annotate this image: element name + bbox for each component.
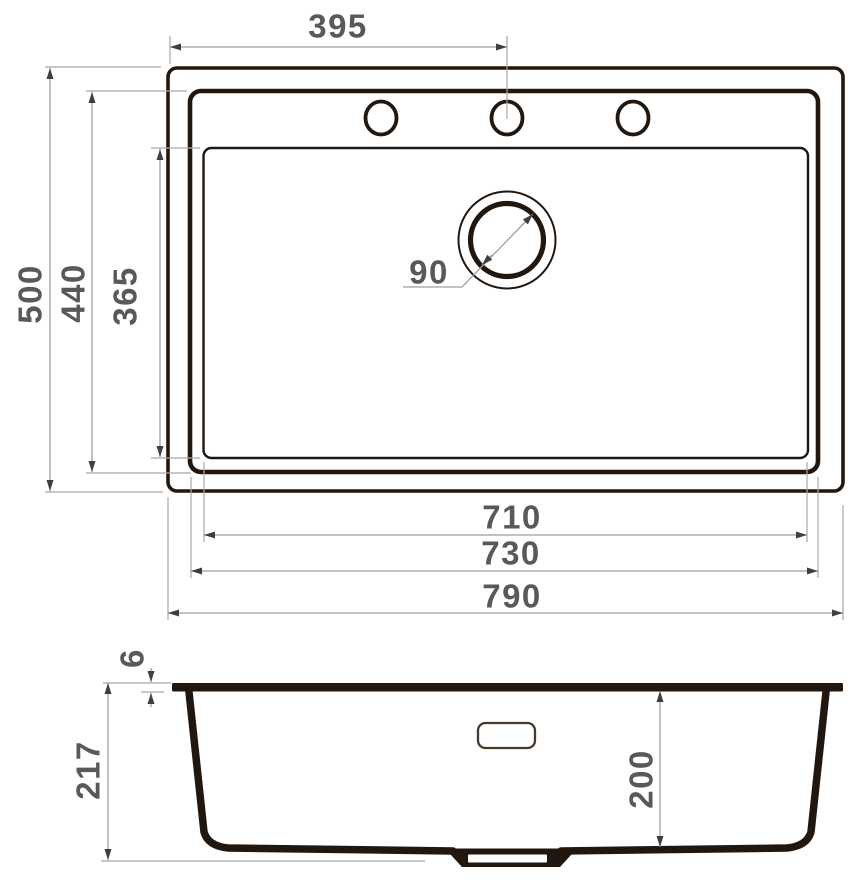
right-wall — [561, 692, 826, 851]
dim-bowl-inner-depth: 365 — [107, 148, 201, 458]
section-view: 6 217 200 — [70, 648, 844, 867]
dim-label-90: 90 — [409, 254, 449, 291]
dim-label-710: 710 — [482, 499, 542, 536]
drawing-canvas: 395 500 440 365 90 — [0, 0, 860, 880]
rim-bar — [172, 683, 843, 692]
dim-overall-height: 217 — [70, 683, 426, 861]
dim-label-217: 217 — [70, 740, 107, 800]
overflow-opening — [478, 723, 535, 748]
sink-outline — [168, 68, 843, 491]
dim-label-200: 200 — [623, 749, 660, 809]
top-view: 395 500 440 365 90 — [12, 8, 844, 621]
left-wall — [189, 692, 453, 851]
dim-label-440: 440 — [55, 263, 92, 323]
section-outline — [172, 683, 843, 867]
faucet-hole-left — [366, 102, 397, 135]
dim-label-395: 395 — [308, 8, 368, 45]
dim-faucet-offset: 395 — [170, 8, 507, 120]
bowl-inner-edge — [204, 148, 809, 458]
dim-label-365: 365 — [107, 266, 144, 326]
dim-bowl-depth: 200 — [623, 691, 661, 847]
sink-dimension-drawing: 395 500 440 365 90 — [0, 0, 860, 880]
dim-label-6: 6 — [114, 648, 151, 668]
dim-rim-thickness: 6 — [103, 648, 171, 707]
dim-drain-diameter: 90 — [403, 214, 533, 291]
drain-fitting-window — [468, 855, 547, 863]
faucet-hole-right — [618, 102, 649, 135]
sink-outer-edge — [168, 68, 843, 491]
dim-label-500: 500 — [12, 264, 49, 324]
dim-label-730: 730 — [481, 535, 541, 572]
dim-label-790: 790 — [482, 578, 542, 615]
